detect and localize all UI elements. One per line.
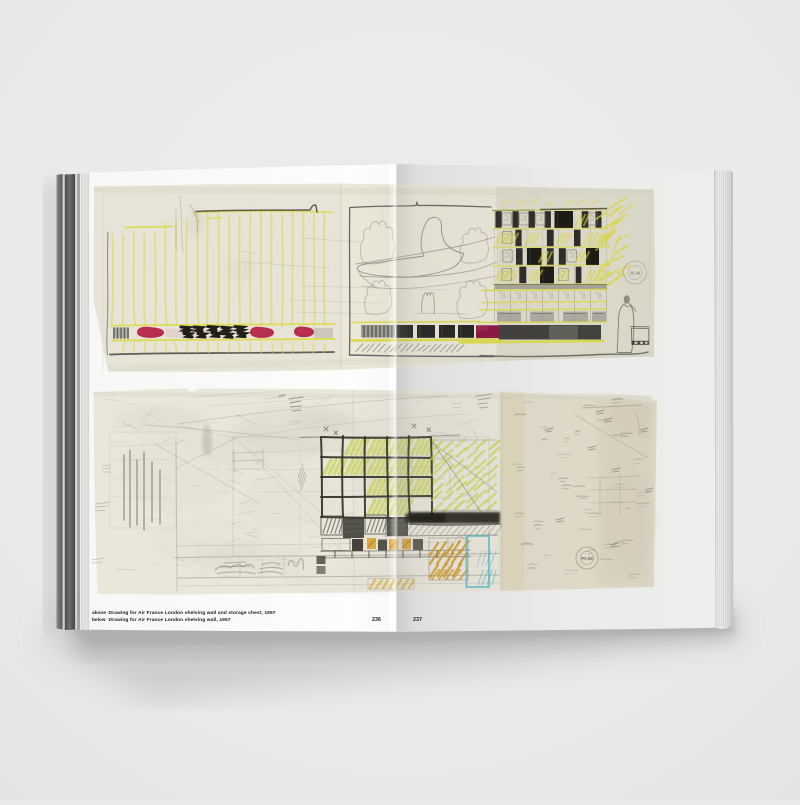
svg-text:Drawing for Air France London: Drawing for Air France London shelving w…: [109, 610, 276, 616]
svg-text:236: 236: [372, 617, 381, 623]
svg-text:above: above: [92, 610, 106, 616]
svg-text:237: 237: [413, 617, 422, 623]
svg-text:below: below: [92, 617, 106, 623]
svg-text:Drawing for Air France London: Drawing for Air France London shelving w…: [109, 617, 231, 623]
